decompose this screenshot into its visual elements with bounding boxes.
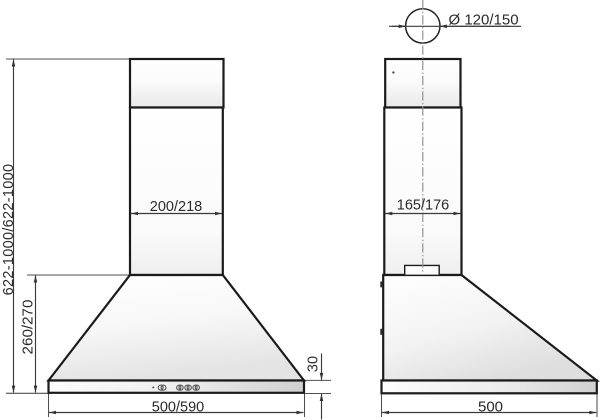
- svg-text:30: 30: [306, 356, 322, 372]
- svg-text:622-1000/622-1000: 622-1000/622-1000: [1, 164, 17, 296]
- svg-text:500/590: 500/590: [152, 399, 204, 415]
- svg-text:165/176: 165/176: [397, 198, 449, 214]
- svg-text:500: 500: [478, 398, 503, 415]
- svg-text:Ø 120/150: Ø 120/150: [449, 11, 519, 28]
- svg-text:200/218: 200/218: [150, 199, 202, 215]
- svg-text:260/270: 260/270: [19, 300, 36, 355]
